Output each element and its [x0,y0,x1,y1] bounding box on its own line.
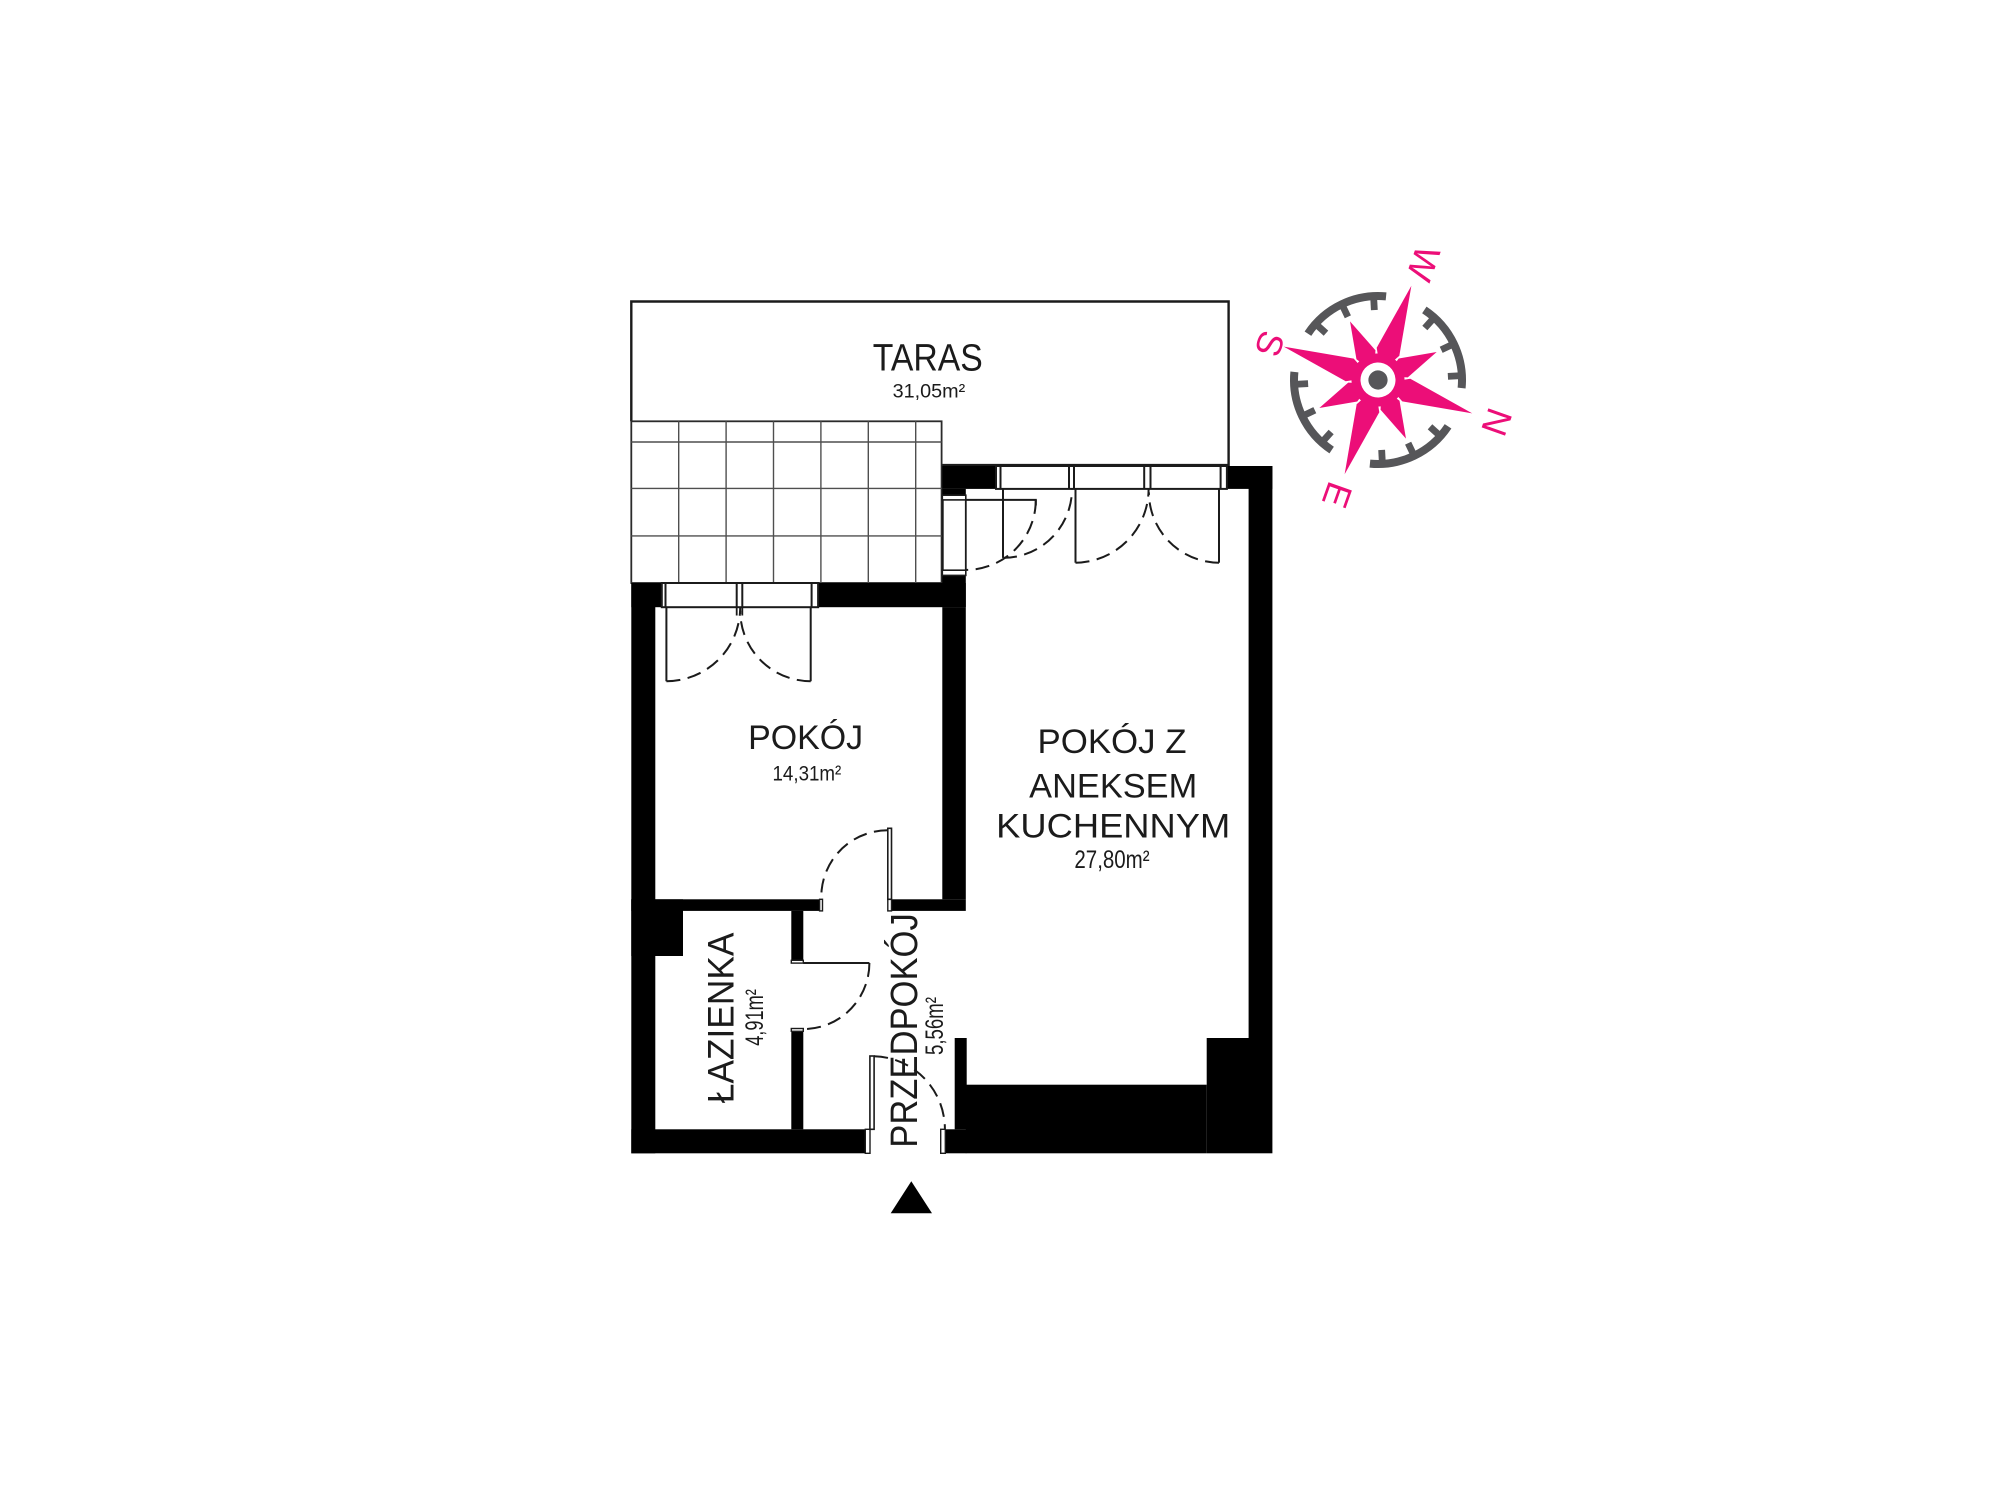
svg-text:27,80m²: 27,80m² [1074,846,1149,874]
svg-text:PRZEDPOKÓJ: PRZEDPOKÓJ [883,913,926,1147]
svg-text:ANEKSEM: ANEKSEM [1029,768,1197,806]
svg-text:TARAS: TARAS [873,338,983,380]
svg-text:4,91m²: 4,91m² [741,989,769,1046]
svg-text:KUCHENNYM: KUCHENNYM [996,808,1230,846]
svg-text:14,31m²: 14,31m² [773,763,842,786]
svg-text:31,05m²: 31,05m² [893,382,966,403]
svg-text:POKÓJ Z: POKÓJ Z [1038,723,1187,761]
svg-text:POKÓJ: POKÓJ [748,719,863,757]
svg-text:ŁAZIENKA: ŁAZIENKA [699,933,741,1104]
svg-text:5,56m²: 5,56m² [921,997,949,1055]
